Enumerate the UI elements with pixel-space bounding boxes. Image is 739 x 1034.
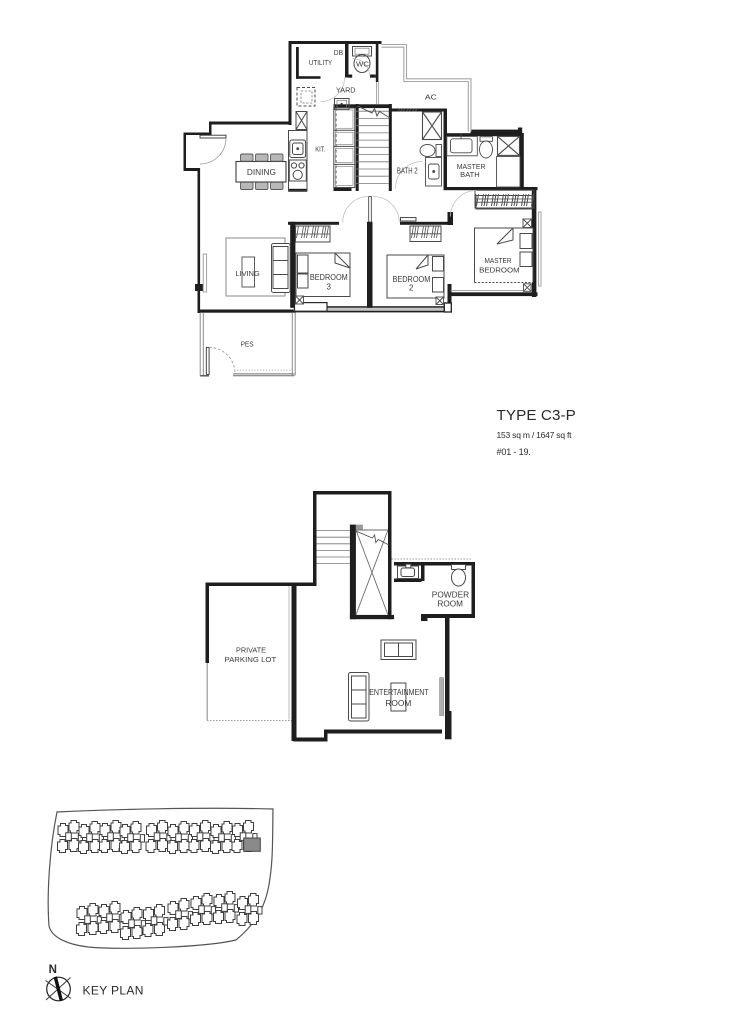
svg-text:POWDER: POWDER [432, 591, 470, 600]
svg-text:KIT.: KIT. [315, 147, 325, 154]
svg-text:KEY PLAN: KEY PLAN [83, 984, 144, 998]
svg-text:ROOM: ROOM [438, 600, 464, 609]
svg-text:ENTERTAINMENT: ENTERTAINMENT [369, 688, 429, 697]
svg-text:BEDROOM: BEDROOM [479, 266, 520, 275]
svg-text:AC: AC [425, 92, 437, 101]
svg-text:BATH 2: BATH 2 [397, 167, 418, 176]
svg-text:ROOM: ROOM [385, 699, 411, 708]
svg-text:DB: DB [334, 50, 344, 57]
svg-text:PRIVATE: PRIVATE [236, 646, 266, 655]
svg-text:#01 - 19.: #01 - 19. [497, 447, 531, 457]
svg-text:TYPE C3-P: TYPE C3-P [497, 407, 576, 424]
svg-text:PARKING LOT: PARKING LOT [225, 655, 277, 664]
svg-text:3: 3 [327, 283, 332, 292]
svg-text:2: 2 [409, 284, 414, 293]
svg-text:MASTER: MASTER [485, 256, 512, 265]
svg-text:WC: WC [356, 60, 369, 69]
svg-text:YARD: YARD [336, 86, 356, 95]
svg-text:LIVING: LIVING [236, 269, 261, 278]
svg-text:153 sq m / 1647 sq ft: 153 sq m / 1647 sq ft [497, 430, 573, 440]
svg-text:UTILITY: UTILITY [309, 58, 332, 67]
svg-text:N: N [49, 964, 57, 976]
svg-text:DINING: DINING [247, 168, 276, 177]
svg-text:PES: PES [241, 339, 254, 348]
svg-text:BATH: BATH [460, 170, 480, 179]
svg-text:BEDROOM: BEDROOM [310, 273, 348, 282]
